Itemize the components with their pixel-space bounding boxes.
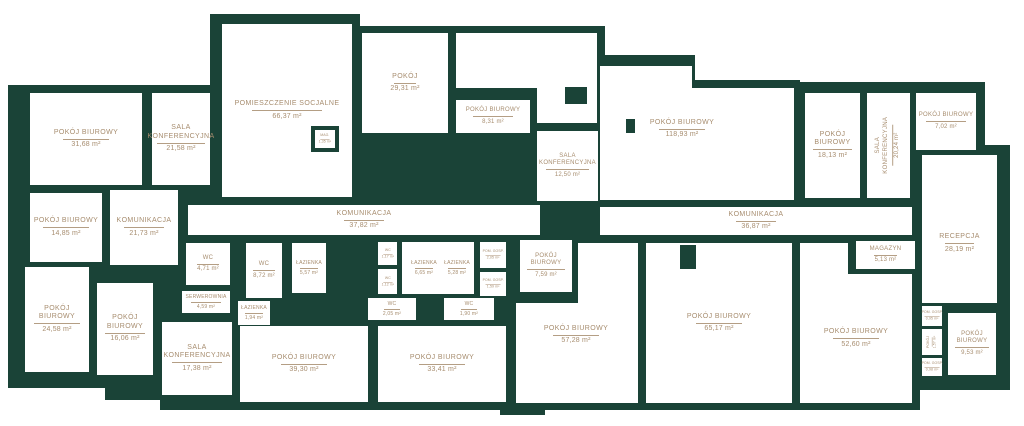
room-area-label: 52,60 m² [824,341,888,350]
room-area-label: 21,58 m² [147,145,214,154]
room-name-label: POKÓJ BIUROWY [272,354,336,363]
room-pokoj-biurowy-7-59: POKÓJ BIUROWY7,59 m² [520,240,572,292]
room-area-label: 28,19 m² [939,246,980,255]
room-name-label: WC [460,301,478,308]
room-area-label: 7,02 m² [919,124,974,132]
room-pokoj-biurowy-65-17: POKÓJ BIUROWY65,17 m² [646,243,792,403]
room-pokoj-1-57: POKÓJ1,57 m² [922,329,942,355]
room-name-label: SALA KONFERENCYJNA [875,117,890,174]
label-divider [415,268,434,269]
label-divider [924,316,939,317]
room-serwerownia-4-59: SERWEROWNIA4,59 m² [182,291,230,313]
room-area-label: 20,24 m² [894,117,902,174]
room-name-label: SALA KONFERENCYJNA [537,153,598,168]
label-divider [252,110,322,111]
room-pokoj-biurowy-9-53: POKÓJ BIUROWY9,53 m² [948,313,996,375]
room-name-label: POM. GOSP. [482,279,503,283]
room-pokoj-biurowy-33-41: POKÓJ BIUROWY33,41 m² [378,326,506,402]
room-pokoj-biurowy-31-68: POKÓJ BIUROWY31,68 m² [30,93,142,185]
room-area-label: 17,38 m² [162,365,232,374]
room-name-label: POKÓJ BIUROWY [97,314,153,331]
label-divider [473,116,512,117]
room-pomieszczenie-socjalne-66-37: POMIESZCZENIE SOCJALNE66,37 m² [222,24,352,197]
room-name-label: WC [197,255,219,263]
label-divider [813,149,853,150]
room-pom-gosp-1-59: POM. GOSP.1,59 m² [480,272,506,296]
room-area-label: 5,28 m² [444,270,470,277]
room-area-label: 12,50 m² [537,172,598,180]
room-name-label: POMIESZCZENIE SOCJALNE [235,100,340,109]
label-divider [344,220,384,221]
room-name-label: POM. GOSP. [921,362,942,366]
label-divider [527,269,564,270]
room-mag-1-35: MAG.1,35 m² [311,126,339,152]
room-name-label: WC [381,276,394,280]
room-name-label: POKÓJ BIUROWY [410,354,474,363]
room-area-label: 1,90 m² [460,311,478,318]
structural-pillar [565,87,587,104]
room-name-label: WC [253,261,275,269]
room-pokoj-biurowy-39-30: POKÓJ BIUROWY39,30 m² [240,326,368,402]
room-name-label: POKÓJ BIUROWY [824,328,888,337]
room-pokoj-biurowy-118-93: POKÓJ BIUROWY118,93 m² [617,100,747,158]
room-name-label: POKÓJ BIUROWY [687,313,751,322]
label-divider [384,309,400,310]
label-divider [394,83,416,84]
room-name-label: ŁAZIENKA [444,260,470,267]
label-divider [172,362,222,363]
room-name-label: POKÓJ [390,73,419,82]
room-pokoj-biurowy-52-60: POKÓJ BIUROWY52,60 m² [800,274,912,403]
label-divider [874,255,897,256]
room-name-label: KOMUNIKACJA [729,211,784,220]
room-wc-4-71: WC4,71 m² [186,243,230,285]
room-area-label: 2,05 m² [482,256,503,260]
label-divider [955,347,990,348]
label-divider [281,364,327,365]
room-name-label: POM. GOSP. [921,311,942,315]
room-pokoj-biurowy-7-02: POKÓJ BIUROWY7,02 m² [916,93,976,150]
room-area-label: 24,58 m² [25,326,89,335]
label-divider [245,313,264,314]
room-wc-1-12: WC1,12 m² [378,269,397,294]
room-area-label: 118,93 m² [650,131,714,140]
room-pokoj-biurowy-18-13: POKÓJ BIUROWY18,13 m² [805,93,860,198]
room-area-label: 29,31 m² [390,85,419,94]
room-name-label: POM. GOSP. [482,250,503,254]
room-name-label: ŁAZIENKA [411,260,437,267]
label-divider [157,143,205,144]
room-area-label: 0,95 m² [921,317,942,321]
label-divider [300,268,319,269]
room-lazienka-5-28: ŁAZIENKA5,28 m² [440,242,474,294]
room-name-label: SALA KONFERENCYJNA [147,124,214,141]
room-pokoj-biurowy-16-06: POKÓJ BIUROWY16,06 m² [97,283,153,375]
label-divider [461,309,477,310]
room-area-label: 18,13 m² [805,152,860,161]
room-area-label: 1,57 m² [933,336,937,349]
label-divider [659,129,705,130]
room-name-label: KOMUNIKACJA [117,217,172,226]
label-divider [924,367,939,368]
room-name-label: MAG. [319,134,332,138]
room-name-label: POKÓJ BIUROWY [54,129,118,138]
room-name-label: POKÓJ BIUROWY [466,107,521,115]
room-pom-gosp-0-98: POM. GOSP.0,98 m² [922,358,942,376]
room-name-label: KOMUNIKACJA [337,210,392,219]
room-area-label: 4,71 m² [197,266,219,274]
room-pom-gosp-0-95: POM. GOSP.0,95 m² [922,306,942,326]
label-divider [945,243,974,244]
room-area-label: 6,65 m² [411,270,437,277]
label-divider [485,284,500,285]
room-name-label: POKÓJ [927,336,931,349]
room-area-label: 1,35 m² [319,140,332,144]
room-name-label: SALA KONFERENCYJNA [162,344,232,361]
room-name-label: POKÓJ BIUROWY [805,131,860,148]
room-pokoj-biurowy-14-85: POKÓJ BIUROWY14,85 m² [30,193,102,262]
label-divider [383,281,392,282]
label-divider [553,335,599,336]
room-name-label: POKÓJ BIUROWY [948,331,996,346]
room-area-label: 5,13 m² [870,257,902,265]
room-name-label: WC [381,248,394,252]
room-name-label: POKÓJ BIUROWY [650,119,714,128]
room-area-label: 4,59 m² [186,304,227,311]
room-area-label: 1,12 m² [381,283,394,287]
label-divider [320,139,329,140]
room-area-label: 57,28 m² [544,337,608,346]
room-pokoj-29-31: POKÓJ29,31 m² [362,33,448,133]
room-area-label: 16,06 m² [97,335,153,344]
label-divider [383,253,392,254]
room-komunikacja-36-87: KOMUNIKACJA36,87 m² [600,207,912,235]
room-sala-konferencyjna-17-38: SALA KONFERENCYJNA17,38 m² [162,322,232,395]
room-sala-konferencyjna-20-24: SALA KONFERENCYJNA20,24 m² [867,93,910,198]
room-area-label: 0,98 m² [921,368,942,372]
room-magazyn-5-13: MAGAZYN5,13 m² [856,241,915,269]
room-wc-8-72: WC8,72 m² [246,243,282,298]
room-pom-gosp-2-05: POM. GOSP.2,05 m² [480,242,506,268]
room-komunikacja-37-82: KOMUNIKACJA37,82 m² [188,205,540,235]
room-area-label: 39,30 m² [272,366,336,375]
room-recepcja-28-19: RECEPCJA28,19 m² [922,155,997,303]
room-lazienka-5-57: ŁAZIENKA5,57 m² [292,243,326,293]
room-wc-2-05: WC2,05 m² [368,298,416,320]
room-name-label: POKÓJ BIUROWY [520,253,572,268]
label-divider [736,221,776,222]
room-name-label: POKÓJ BIUROWY [544,325,608,334]
room-name-label: POKÓJ BIUROWY [919,112,974,120]
room-name-label: ŁAZIENKA [241,305,267,312]
label-divider [197,264,219,265]
room-name-label: POKÓJ BIUROWY [34,217,98,226]
label-divider [124,227,164,228]
room-area-57-28-upper [578,243,638,305]
room-area-label: 5,57 m² [296,270,322,277]
room-area-label: 66,37 m² [235,113,340,122]
label-divider [448,268,467,269]
room-area-label: 1,59 m² [482,285,503,289]
label-divider [833,338,879,339]
label-divider [43,227,89,228]
room-area-label: 1,17 m² [381,255,394,259]
label-divider [892,125,893,166]
room-area-label: 14,85 m² [34,230,98,239]
room-area-label: 8,72 m² [253,273,275,281]
label-divider [105,333,145,334]
room-name-label: MAGAZYN [870,246,902,254]
room-komunikacja-21-73: KOMUNIKACJA21,73 m² [110,190,178,265]
room-area-label: 9,53 m² [948,350,996,358]
label-divider [419,364,465,365]
room-area-label: 36,87 m² [729,223,784,232]
label-divider [546,169,590,170]
room-sala-konferencyjna-21-58: SALA KONFERENCYJNA21,58 m² [152,93,210,185]
room-name-label: RECEPCJA [939,233,980,242]
label-divider [191,302,221,303]
structural-pillar [626,119,635,133]
room-area-label: 8,31 m² [466,119,521,127]
room-pokoj-biurowy-57-28: POKÓJ BIUROWY57,28 m² [526,310,626,360]
label-divider [485,255,500,256]
label-divider [34,323,80,324]
room-area-label: 2,05 m² [383,311,401,318]
room-area-label: 21,73 m² [117,230,172,239]
label-divider [696,323,742,324]
room-pokoj-biurowy-8-31: POKÓJ BIUROWY8,31 m² [456,100,530,133]
room-lazienka-1-94: ŁAZIENKA1,94 m² [238,301,270,325]
room-area-unlabeled-top [456,33,597,88]
room-name-label: ŁAZIENKA [296,260,322,267]
label-divider [253,270,275,271]
room-pokoj-biurowy-24-58: POKÓJ BIUROWY24,58 m² [25,267,89,372]
label-divider [926,121,965,122]
label-divider [63,139,109,140]
room-area-label: 7,59 m² [520,272,572,280]
room-wc-1-17: WC1,17 m² [378,242,397,265]
room-area-label: 1,94 m² [241,315,267,322]
room-area-label: 33,41 m² [410,366,474,375]
room-sala-konferencyjna-12-50: SALA KONFERENCYJNA12,50 m² [537,131,598,201]
room-name-label: WC [383,301,401,308]
exterior-notch [8,388,105,418]
room-area-label: 37,82 m² [337,222,392,231]
room-name-label: POKÓJ BIUROWY [25,305,89,322]
room-wc-1-90: WC1,90 m² [444,298,494,320]
structural-pillar [680,245,696,269]
room-area-label: 65,17 m² [687,325,751,334]
room-area-label: 31,68 m² [54,141,118,150]
floor-plan-canvas: POKÓJ BIUROWY31,68 m² SALA KONFERENCYJNA… [0,0,1024,426]
room-name-label: SERWEROWNIA [186,294,227,301]
